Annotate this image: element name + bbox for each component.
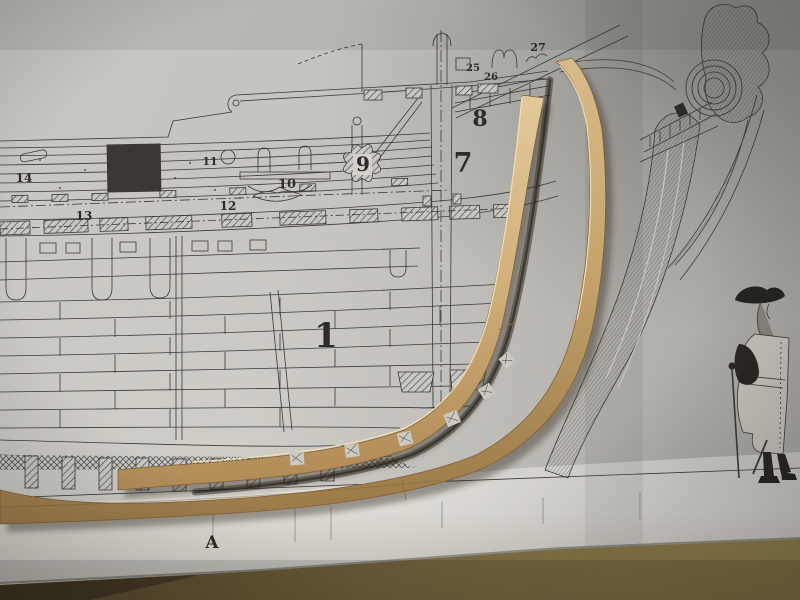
photo-of-ship-plan: 14 11 13 12 10 9 8 7 1 25 26 27 A — [0, 0, 800, 600]
ship-plan-canvas: 14 11 13 12 10 9 8 7 1 25 26 27 A — [0, 0, 800, 600]
photo-vignette — [0, 0, 800, 600]
top-edge-shade — [0, 0, 800, 50]
